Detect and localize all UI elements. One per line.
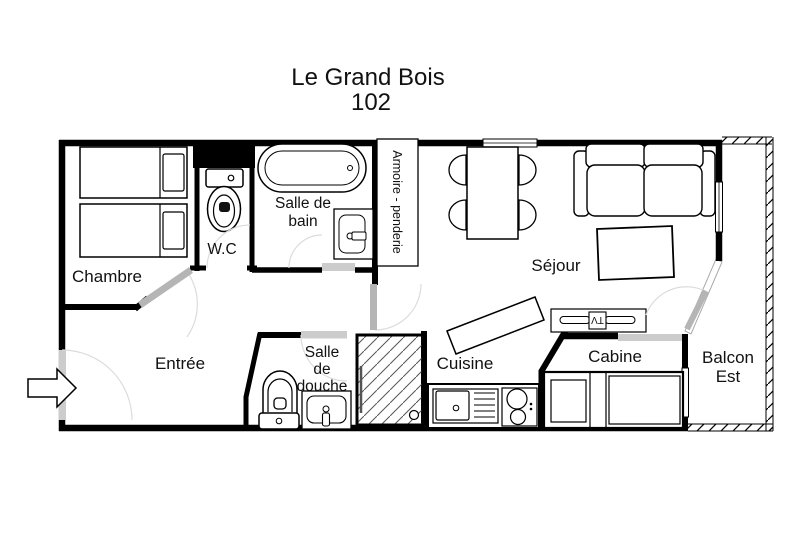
room-cuisine <box>428 384 539 428</box>
floor-plan-page: Le Grand Bois 102 <box>0 0 800 533</box>
room-chambre <box>80 147 187 257</box>
pillow <box>163 212 184 249</box>
shower-room-door-sill <box>301 331 347 339</box>
door-leaf <box>140 270 191 305</box>
wall-shower-room-left <box>246 333 260 430</box>
tv-label: TV <box>591 314 604 325</box>
sofa-back-cushion <box>644 144 703 167</box>
hob-knob <box>530 408 533 411</box>
toilet-flush <box>274 398 286 409</box>
washbasin-stem <box>323 413 330 426</box>
dining-table <box>467 147 518 239</box>
label-cabine: Cabine <box>588 347 642 366</box>
entrance-arrow-icon <box>28 369 76 407</box>
label-salle-de-douche-line1: Salle <box>305 344 339 361</box>
tv-shelf-rail <box>560 317 590 324</box>
chair <box>449 200 466 230</box>
door-swing-arc <box>375 284 421 330</box>
railing-bottom <box>688 424 773 431</box>
label-salle-de-bain-line2: bain <box>288 213 317 230</box>
label-cuisine: Cuisine <box>437 354 494 373</box>
hob-knob <box>530 403 533 406</box>
railing-top <box>722 137 772 144</box>
shower-drain <box>410 411 419 420</box>
label-balcon-line1: Balcon <box>702 348 754 367</box>
coffee-table <box>597 226 674 280</box>
bathtub-inner <box>265 151 359 185</box>
page-title: Le Grand Bois <box>291 64 444 91</box>
room-cabine <box>544 372 683 428</box>
door-swing-arc <box>187 273 197 337</box>
label-wc: W.C <box>207 241 236 258</box>
door-swing-arc <box>289 235 322 268</box>
chair <box>519 200 536 230</box>
sofa-seat-cushion <box>587 165 645 216</box>
kitchen-sink <box>436 391 469 420</box>
cabine-bed-mattress <box>609 376 680 424</box>
cabine-door-sill <box>618 334 683 341</box>
bath-door-sill <box>322 263 355 271</box>
label-chambre: Chambre <box>72 267 142 286</box>
pillow <box>163 154 184 191</box>
label-salle-de-douche-line3: douche <box>297 378 348 395</box>
tv-shelf: TV <box>551 309 646 332</box>
room-wc <box>206 169 243 232</box>
sofa <box>574 144 715 216</box>
label-entree: Entrée <box>155 354 205 373</box>
duct-block <box>193 140 255 168</box>
label-balcon-line2: Est <box>716 367 741 386</box>
wardrobe: Armoire - penderie <box>377 139 418 266</box>
toilet-cistern <box>206 169 243 187</box>
apartment-number: 102 <box>351 89 391 116</box>
label-salle-de-douche-line2: de <box>313 361 330 378</box>
railing-right <box>766 137 773 431</box>
toilet-base <box>259 413 299 429</box>
chair <box>519 155 536 185</box>
floor-plan: Le Grand Bois 102 <box>0 0 800 533</box>
tv-shelf-rail <box>605 317 635 324</box>
label-sejour: Séjour <box>531 256 580 275</box>
washbasin-handle <box>352 232 366 240</box>
sofa-seat-cushion <box>644 165 702 216</box>
chair <box>449 155 466 185</box>
door-leaf <box>687 291 706 329</box>
toilet-flush <box>219 202 230 212</box>
label-salle-de-bain-line1: Salle de <box>275 195 331 212</box>
kitchen-hob <box>502 388 537 426</box>
sofa-back-cushion <box>586 144 645 167</box>
cabine-bed-pillow <box>551 380 586 422</box>
wardrobe-label: Armoire - penderie <box>390 150 404 254</box>
sideboard <box>447 297 544 354</box>
